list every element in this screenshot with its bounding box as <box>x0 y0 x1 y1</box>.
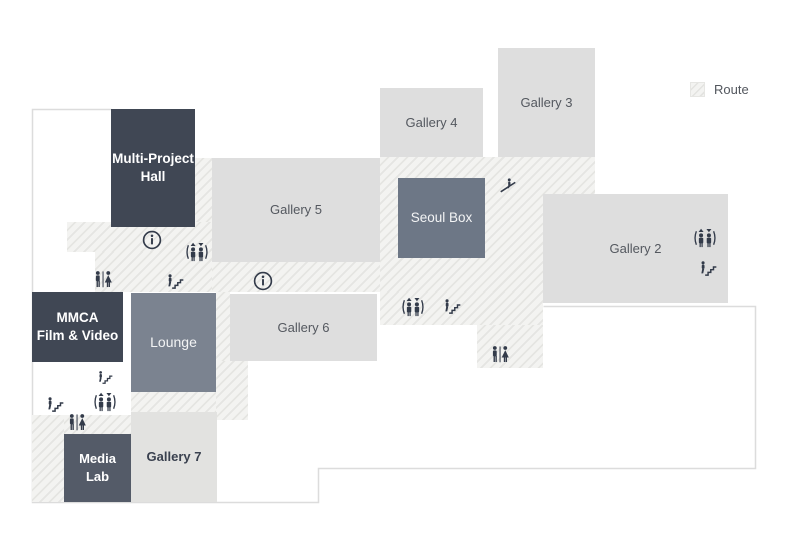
room-multi-project-hall: Multi-Project Hall <box>111 109 195 227</box>
stairs-icon <box>166 273 185 290</box>
stairs-icon <box>699 260 718 277</box>
restroom-icon <box>489 345 511 365</box>
info-icon <box>142 230 163 251</box>
route-path-segment <box>195 158 212 222</box>
room-label: Gallery 4 <box>405 114 457 132</box>
info-icon <box>253 271 274 292</box>
elevator-icon <box>94 391 117 414</box>
room-label: Multi-Project Hall <box>112 150 194 186</box>
room-media-lab: Media Lab <box>64 434 131 502</box>
room-label: Gallery 2 <box>609 240 661 258</box>
elevator-icon <box>402 296 425 319</box>
room-mmca-film-video: MMCA Film & Video <box>32 292 123 362</box>
stairs-icon <box>97 370 114 385</box>
room-label: Gallery 7 <box>147 448 202 466</box>
elevator-icon <box>694 227 717 250</box>
room-label: Seoul Box <box>411 209 473 227</box>
room-gallery-4: Gallery 4 <box>380 88 483 157</box>
route-label: Route <box>714 82 749 97</box>
route-path-segment <box>32 415 64 502</box>
room-label: Media Lab <box>79 450 116 485</box>
elevator-icon <box>186 241 209 264</box>
legend: Route <box>690 82 749 97</box>
escalator-icon <box>499 177 518 194</box>
room-gallery-6: Gallery 6 <box>230 294 377 361</box>
room-seoul-box: Seoul Box <box>398 178 485 258</box>
route-swatch <box>690 82 705 97</box>
route-path-segment <box>216 361 248 420</box>
route-path-segment <box>212 262 380 292</box>
route-path-segment <box>131 392 216 413</box>
route-path-segment <box>216 292 230 361</box>
stairs-icon <box>443 298 462 315</box>
restroom-icon <box>92 270 114 290</box>
stairs-icon <box>46 396 65 413</box>
room-label: MMCA Film & Video <box>37 309 119 345</box>
room-gallery-5: Gallery 5 <box>212 158 380 262</box>
room-label: Gallery 6 <box>277 319 329 337</box>
floor-plan-map: Multi-Project Hall Gallery 5 Gallery 4 G… <box>0 0 799 558</box>
room-label: Gallery 5 <box>270 201 322 219</box>
room-gallery-7: Gallery 7 <box>131 412 217 502</box>
restroom-icon <box>66 413 88 433</box>
room-lounge: Lounge <box>131 293 216 392</box>
room-gallery-3: Gallery 3 <box>498 48 595 157</box>
room-label: Lounge <box>150 333 197 352</box>
room-label: Gallery 3 <box>520 94 572 112</box>
